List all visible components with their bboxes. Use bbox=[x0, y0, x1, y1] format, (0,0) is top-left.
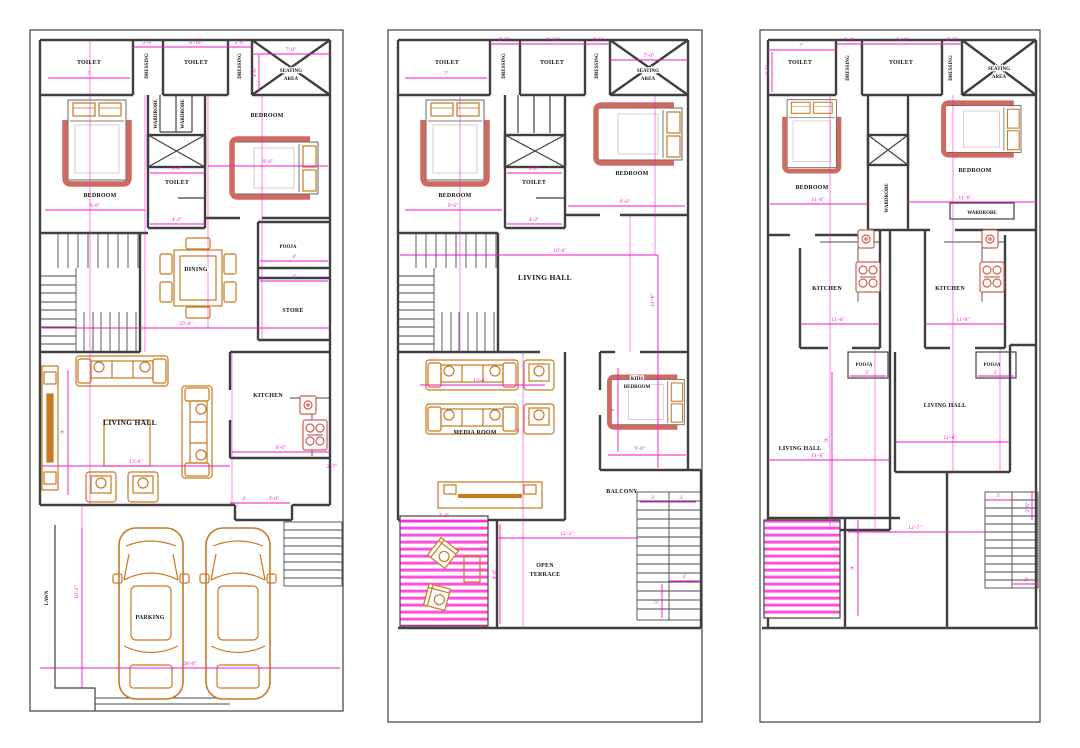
dim-label: 11'-6" bbox=[650, 293, 656, 306]
room-label: AREA bbox=[992, 75, 1007, 80]
dim-label: 3' bbox=[651, 495, 655, 501]
room-label: TOILET bbox=[435, 60, 459, 66]
double-bed-icon bbox=[230, 139, 318, 197]
dim-label: 3'-6" bbox=[765, 65, 771, 76]
room-label: LIVING HALL bbox=[924, 403, 967, 409]
cad-floor-plan-sheet: TOILET DRESSING TOILET DRESSING SEATING … bbox=[0, 0, 1080, 748]
room-label: WARDROBE bbox=[154, 99, 159, 129]
double-bed-icon bbox=[594, 105, 682, 163]
dim-label: 6'-10" bbox=[895, 37, 909, 43]
stove-icon bbox=[303, 420, 327, 450]
room-label: WARDROBE bbox=[885, 183, 890, 213]
room-label: DRESSING bbox=[238, 53, 243, 79]
dim-label: 11'-6" bbox=[943, 435, 956, 441]
exterior-staircase bbox=[284, 522, 342, 586]
dim-label: 23'-0" bbox=[179, 321, 193, 327]
double-bed-icon bbox=[65, 100, 129, 184]
dim-label: 3'-2" bbox=[529, 166, 540, 172]
dim-label: 9' bbox=[850, 566, 856, 570]
room-label: LIVING HALL bbox=[518, 273, 572, 282]
double-bed-icon bbox=[785, 100, 839, 171]
room-label: TOILET bbox=[522, 180, 546, 186]
dim-label: 9'-6" bbox=[492, 569, 498, 580]
room-label: TOILET bbox=[788, 60, 812, 66]
dining-table-icon bbox=[160, 238, 236, 318]
room-label: LIVING HALL bbox=[779, 446, 822, 452]
room-label: TOILET bbox=[184, 60, 208, 66]
terrace-staircase bbox=[637, 492, 701, 620]
construction-lines bbox=[830, 95, 1000, 530]
room-label: KITCHEN bbox=[253, 393, 283, 399]
dim-label: 11'-6" bbox=[958, 195, 971, 201]
room-label: POOJA bbox=[984, 363, 1001, 368]
dim-label: 2'-6" bbox=[143, 40, 154, 46]
lift-cross bbox=[868, 135, 908, 165]
staircase bbox=[398, 233, 496, 352]
dim-label: 2'-6" bbox=[499, 37, 510, 43]
sink-icon bbox=[858, 230, 874, 248]
dim-label: 11'-6" bbox=[811, 197, 824, 203]
dim-label: 2'-6" bbox=[844, 37, 855, 43]
room-label: KITCHEN bbox=[935, 286, 965, 292]
room-label: AREA bbox=[641, 77, 656, 82]
dim-label: 9'-6" bbox=[620, 199, 631, 205]
dim-label: 4'-2" bbox=[172, 217, 183, 223]
armchair-icon bbox=[86, 472, 116, 502]
room-label: KITCHEN bbox=[812, 286, 842, 292]
dim-label: 3'-6" bbox=[252, 67, 258, 78]
dim-label: 3' bbox=[993, 370, 997, 376]
dim-label: 3'-2" bbox=[172, 166, 183, 172]
terrace-deck-hatch bbox=[764, 520, 840, 618]
dim-label: 28'-0" bbox=[183, 661, 197, 667]
dim-label: 2'-6" bbox=[947, 37, 958, 43]
dim-label: 2'-0" bbox=[269, 496, 280, 502]
room-label: SEATING bbox=[988, 67, 1010, 72]
room-label: DRESSING bbox=[846, 55, 851, 81]
room-label: BALCONY bbox=[606, 489, 638, 495]
sofa-icon bbox=[426, 360, 518, 390]
dim-label: 13'-6" bbox=[473, 378, 487, 384]
dim-label: 9' bbox=[515, 428, 521, 432]
room-label: BEDROOM bbox=[795, 185, 828, 191]
room-label: POOJA bbox=[280, 245, 297, 250]
room-label: BEDROOM bbox=[615, 171, 648, 177]
dim-label: 3' bbox=[679, 495, 683, 501]
sofa-icon bbox=[182, 386, 212, 478]
room-label: DRESSING bbox=[502, 53, 507, 79]
tv-table-icon bbox=[438, 482, 542, 508]
armchair-icon bbox=[128, 472, 158, 502]
terrace-chair-icon bbox=[424, 584, 451, 611]
room-label: WARDROBE bbox=[181, 99, 186, 129]
room-label: TOILET bbox=[540, 60, 564, 66]
dim-label: 9'-6" bbox=[263, 159, 274, 165]
floor-plan-right: TOILET DRESSING TOILET DRESSING SEATING … bbox=[760, 30, 1040, 722]
room-label: OPEN bbox=[536, 563, 554, 569]
dim-label: 7'-3" bbox=[439, 513, 450, 519]
sink-icon bbox=[982, 230, 998, 248]
room-label: MEDIA ROOM bbox=[453, 430, 496, 436]
staircase bbox=[40, 233, 138, 352]
dim-label: 7' bbox=[87, 71, 91, 77]
dim-label: 9'-6" bbox=[90, 203, 101, 209]
dim-label: 11'-6" bbox=[811, 453, 824, 459]
dim-label: 9' bbox=[824, 438, 830, 442]
kitchen-counters bbox=[820, 242, 1005, 302]
dim-label: 9' bbox=[60, 430, 66, 434]
floor-plan-middle: TOILET DRESSING TOILET DRESSING SEATING … bbox=[388, 30, 702, 722]
room-label: TOILET bbox=[77, 60, 101, 66]
floor-plan-left: TOILET DRESSING TOILET DRESSING SEATING … bbox=[30, 30, 343, 711]
dim-label: 5' bbox=[654, 600, 660, 604]
stove-icon bbox=[980, 262, 1004, 292]
dim-label: 16'-2" bbox=[74, 585, 80, 599]
dim-label: 9'-6" bbox=[276, 445, 287, 451]
dim-label: 11'-6" bbox=[956, 317, 969, 323]
dim-label: 18'-0" bbox=[553, 248, 567, 254]
room-label: BEDROOM bbox=[624, 385, 651, 390]
double-bed-icon bbox=[423, 100, 487, 184]
dim-label: 7'-0" bbox=[286, 47, 297, 53]
room-label: KIDS bbox=[631, 377, 643, 382]
dim-label: 9' bbox=[610, 408, 616, 412]
stove-icon bbox=[856, 262, 880, 292]
dim-label: 9'-0" bbox=[635, 446, 646, 452]
dim-label: 3' bbox=[996, 493, 1000, 499]
room-label: DRESSING bbox=[595, 53, 600, 79]
dim-label: 7' bbox=[799, 43, 803, 49]
lift-cross bbox=[148, 135, 205, 167]
floor-plan-drawing: TOILET DRESSING TOILET DRESSING SEATING … bbox=[0, 0, 1080, 748]
dim-label: 13'-6" bbox=[129, 459, 143, 465]
room-label: TOILET bbox=[165, 180, 189, 186]
room-label: BEDROOM bbox=[438, 193, 471, 199]
tv-unit-icon bbox=[42, 366, 58, 490]
armchair-icon bbox=[524, 404, 554, 434]
car-icon bbox=[200, 528, 276, 699]
dim-label: 11'-6" bbox=[831, 317, 844, 323]
room-label: AREA bbox=[284, 77, 299, 82]
room-label: BEDROOM bbox=[250, 113, 283, 119]
lift-cross bbox=[505, 135, 565, 167]
room-label: DRESSING bbox=[949, 55, 954, 81]
dim-label: 3' bbox=[1024, 577, 1028, 583]
room-label: BEDROOM bbox=[958, 168, 991, 174]
dim-label: 7'-0" bbox=[644, 53, 655, 59]
dim-label: 7' bbox=[444, 71, 448, 77]
room-label: PARKING bbox=[135, 615, 164, 621]
dim-label: 4'-2" bbox=[529, 217, 540, 223]
double-bed-icon bbox=[942, 103, 1021, 155]
dim-label: 4' bbox=[292, 274, 296, 280]
dim-label: 2'-6" bbox=[593, 37, 604, 43]
room-label: TOILET bbox=[889, 60, 913, 66]
dim-label: 12'-7" bbox=[908, 525, 922, 531]
dim-label: 3' bbox=[865, 370, 869, 376]
dim-label: 2'-6" bbox=[1025, 502, 1031, 513]
dim-label: 12'-3" bbox=[560, 531, 574, 537]
lawn-boundary bbox=[55, 525, 95, 711]
room-label: POOJA bbox=[856, 363, 873, 368]
room-label: BEDROOM bbox=[83, 193, 116, 199]
dim-label: 9'-6" bbox=[448, 203, 459, 209]
room-label: DRESSING bbox=[145, 53, 150, 79]
dim-label: 4' bbox=[292, 254, 296, 260]
dim-label: 4' bbox=[242, 496, 246, 502]
room-label: SEATING bbox=[280, 69, 302, 74]
sink-icon bbox=[300, 396, 316, 414]
dim-label: 2'-6" bbox=[235, 40, 246, 46]
armchair-icon bbox=[524, 360, 554, 390]
room-label: STORE bbox=[282, 308, 303, 314]
room-label: WARDROBE bbox=[967, 211, 997, 216]
dim-label: 3' bbox=[682, 574, 686, 580]
dim-label: 6'-10" bbox=[189, 40, 203, 46]
room-label: TERRACE bbox=[530, 572, 561, 578]
room-label: LIVING HALL bbox=[103, 418, 157, 427]
room-label: LAWN bbox=[45, 590, 50, 605]
dim-label: 6'-10" bbox=[546, 37, 560, 43]
car-icon bbox=[113, 528, 189, 699]
room-label: DINING bbox=[184, 267, 208, 273]
room-label: SEATING bbox=[637, 69, 659, 74]
dim-label: 2'-7" bbox=[327, 464, 338, 470]
